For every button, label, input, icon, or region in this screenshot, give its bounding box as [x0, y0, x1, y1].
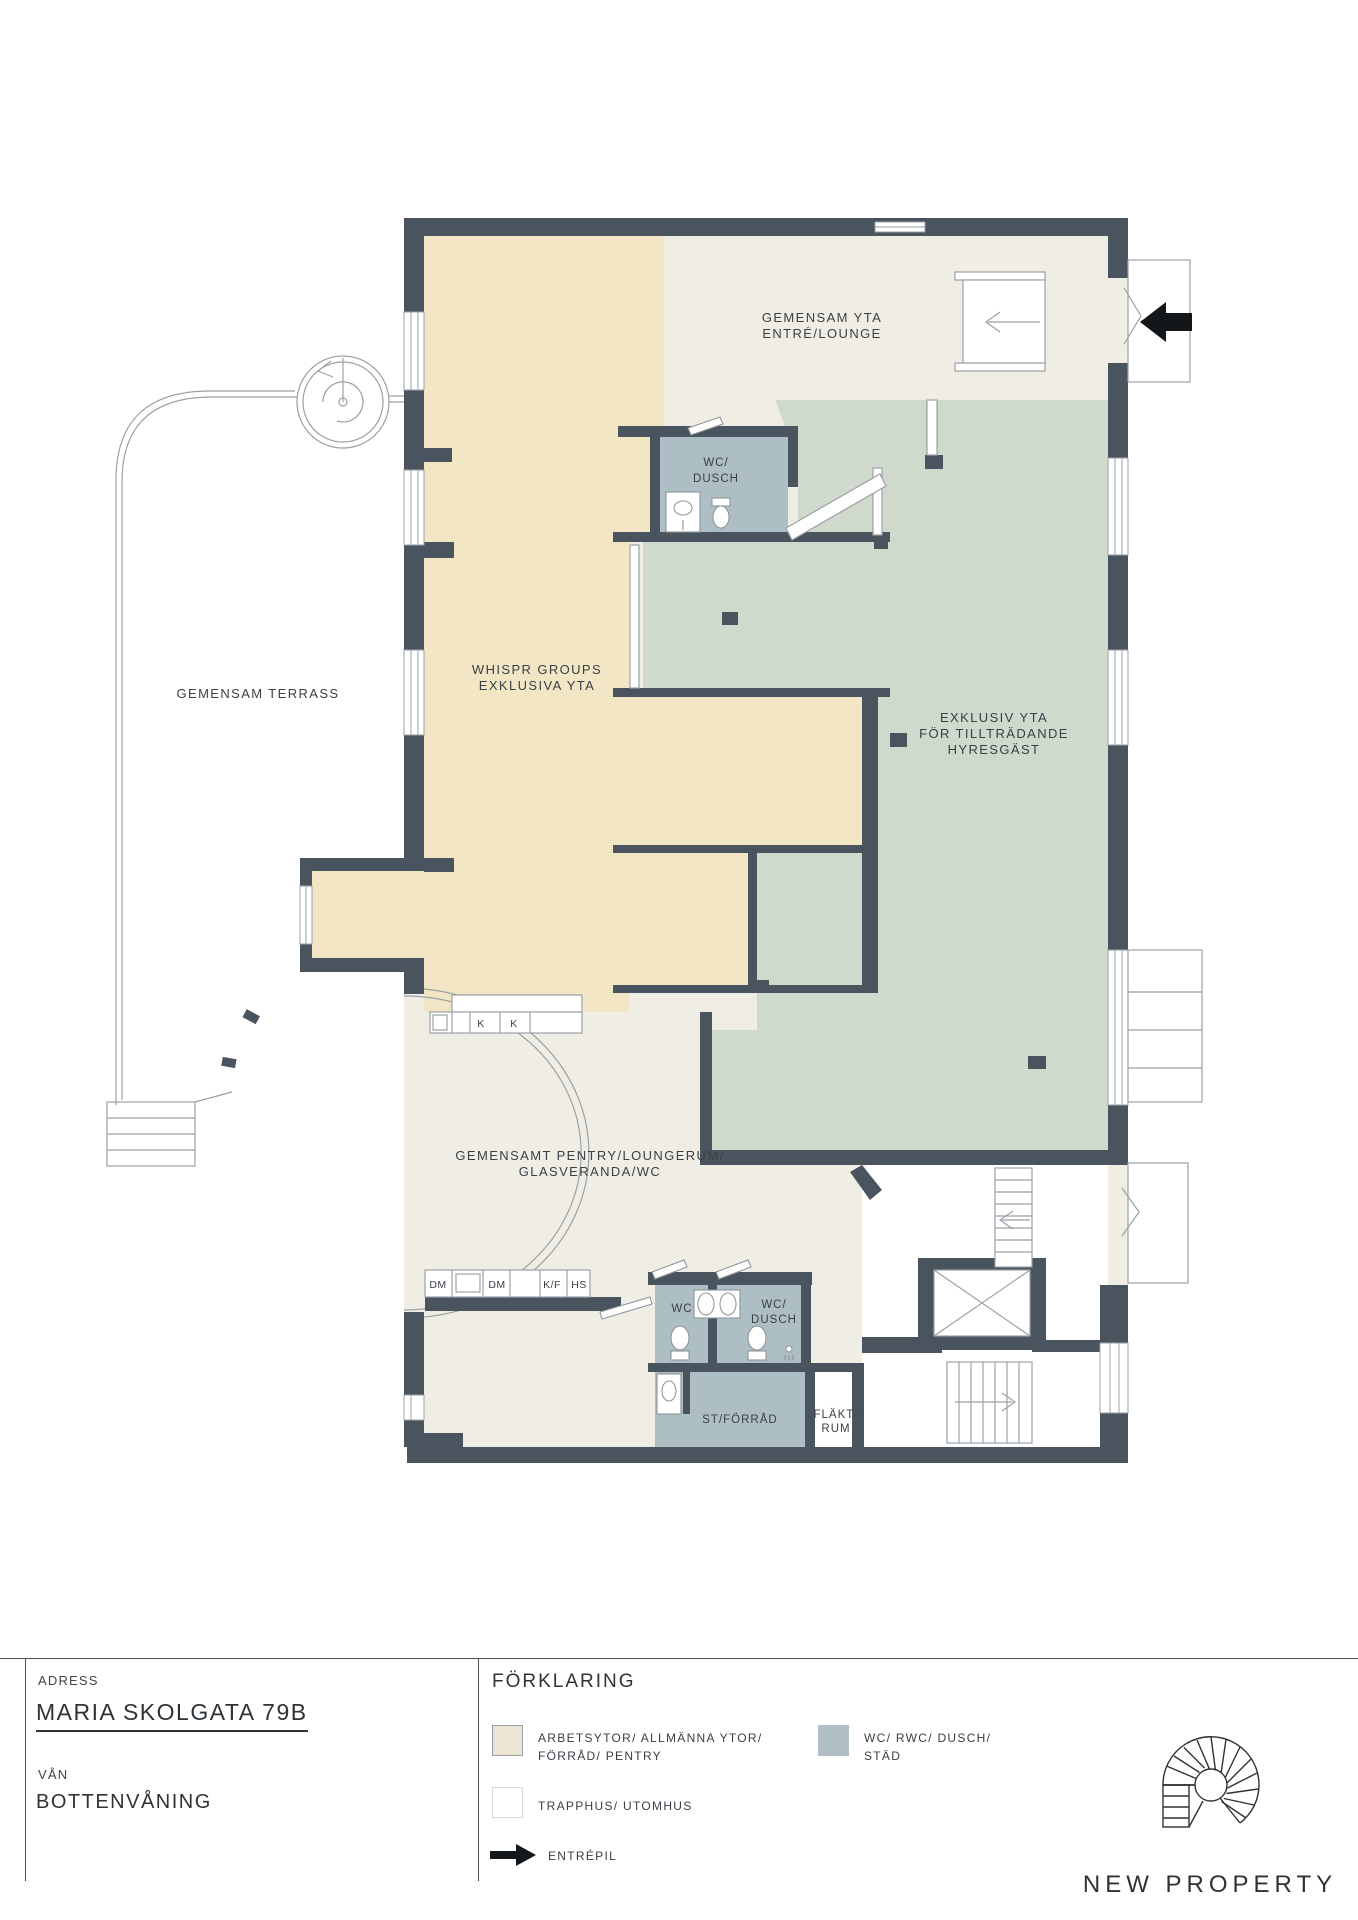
- legend-swatch-wet: [818, 1725, 849, 1756]
- label-exklusiv-2: FÖR TILLTRÄDANDE: [919, 726, 1069, 741]
- label-flaktrum-1: FLÄKT-: [814, 1409, 859, 1421]
- room-whispr-upper: [424, 236, 664, 542]
- logo-text: NEW PROPERTY: [1050, 1871, 1358, 1899]
- door-marker: [722, 612, 738, 625]
- pentry-counter-top: [430, 995, 582, 1033]
- terrace-outline: [107, 391, 404, 1166]
- door-marker: [753, 980, 769, 992]
- window-icon: [404, 650, 424, 735]
- divider: [478, 1659, 479, 1881]
- window-icon: [875, 222, 925, 232]
- label-wc-upper-2: DUSCH: [693, 473, 739, 485]
- floor-plan-drawing: GEMENSAM TERRASS GEMENSAM YTA ENTRÉ/LOUN…: [0, 0, 1358, 1660]
- window-icon: [404, 470, 424, 545]
- stair-flight-up-icon: [995, 1168, 1032, 1267]
- window-icon: [1100, 1343, 1128, 1413]
- label-pentry-1: GEMENSAMT PENTRY/LOUNGERUM/: [455, 1148, 724, 1163]
- spiral-stair-icon: [297, 356, 389, 448]
- elevator-icon: [934, 1270, 1030, 1336]
- door-marker: [890, 733, 907, 747]
- legend-item-wet: WC/ RWC/ DUSCH/ STÄD: [864, 1729, 991, 1765]
- window-icon: [300, 886, 312, 944]
- legend-item-stairwell: TRAPPHUS/ UTOMHUS: [538, 1797, 693, 1815]
- legend-swatch-stairwell: [492, 1787, 523, 1818]
- door-marker: [1028, 1056, 1046, 1069]
- legend-title: FÖRKLARING: [492, 1671, 636, 1693]
- legend-item-entrepil-label: ENTRÉPIL: [548, 1847, 617, 1865]
- divider: [25, 1659, 26, 1881]
- room-mid-office-1: [613, 695, 870, 853]
- window-icon: [1108, 950, 1128, 1105]
- legend-item-wet-line2: STÄD: [864, 1747, 991, 1765]
- label-entre-1: GEMENSAM YTA: [762, 310, 882, 325]
- sink-icon: [666, 492, 700, 532]
- lobby-stair-icon: [955, 272, 1045, 371]
- room-side-annex: [300, 858, 424, 972]
- label-exklusiv-1: EXKLUSIV YTA: [940, 710, 1048, 725]
- exit-exterior-landing: [1128, 1163, 1188, 1283]
- toilet-icon: [671, 1326, 689, 1360]
- sink-icon: [694, 1290, 740, 1318]
- toilet-icon: [748, 1326, 766, 1360]
- label-wc-lower: WC: [671, 1303, 692, 1315]
- address-label: ADRESS: [38, 1673, 99, 1688]
- label-pentry-2: GLASVERANDA/WC: [519, 1164, 661, 1179]
- toilet-icon: [712, 498, 730, 528]
- exterior-bay-icon: [1128, 950, 1202, 1102]
- label-wc-dusch-lower-2: DUSCH: [751, 1314, 797, 1326]
- legend-entry-arrow-icon: [490, 1843, 538, 1867]
- new-property-logo-icon: [1145, 1721, 1275, 1871]
- title-block: ADRESS MARIA SKOLGATA 79B VÅN BOTTENVÅNI…: [0, 1658, 1358, 1920]
- floor-label: VÅN: [38, 1767, 68, 1782]
- label-whispr-2: EXKLUSIVA YTA: [479, 678, 595, 693]
- label-whispr-1: WHISPR GROUPS: [472, 662, 602, 677]
- label-st-forrad: ST/FÖRRÅD: [702, 1413, 777, 1426]
- label-wc-dusch-lower-1: WC/: [761, 1299, 786, 1311]
- window-icon: [1108, 458, 1128, 555]
- stair-flight-down-icon: [947, 1362, 1032, 1443]
- label-flaktrum-2: RUM: [821, 1423, 850, 1435]
- label-k2: K: [510, 1018, 518, 1030]
- label-dm1: DM: [429, 1279, 446, 1291]
- label-dm2: DM: [488, 1279, 505, 1291]
- floorplan-page: GEMENSAM TERRASS GEMENSAM YTA ENTRÉ/LOUN…: [0, 0, 1358, 1920]
- legend-item-wet-line1: WC/ RWC/ DUSCH/: [864, 1729, 991, 1747]
- window-icon: [1108, 650, 1128, 745]
- label-hs: HS: [571, 1279, 587, 1291]
- pentry-counter-bottom: [425, 1270, 590, 1297]
- label-exklusiv-3: HYRESGÄST: [948, 742, 1041, 757]
- address-value: MARIA SKOLGATA 79B: [36, 1699, 308, 1732]
- room-exclusive-mid: [643, 542, 878, 695]
- label-terrass: GEMENSAM TERRASS: [176, 686, 339, 701]
- room-mid-office-2: [613, 853, 755, 993]
- window-icon: [404, 1395, 424, 1420]
- label-wc-upper-1: WC/: [703, 457, 728, 469]
- legend-item-workspace: ARBETSYTOR/ ALLMÄNNA YTOR/ FÖRRÅD/ PENTR…: [538, 1729, 763, 1765]
- legend-swatch-workspace: [492, 1725, 523, 1756]
- floor-value: BOTTENVÅNING: [36, 1791, 212, 1814]
- legend-item-workspace-line1: ARBETSYTOR/ ALLMÄNNA YTOR/: [538, 1729, 763, 1747]
- label-entre-2: ENTRÉ/LOUNGE: [762, 326, 881, 341]
- legend-item-stairwell-line1: TRAPPHUS/ UTOMHUS: [538, 1797, 693, 1815]
- label-k1: K: [477, 1018, 485, 1030]
- label-kf: K/F: [543, 1279, 561, 1291]
- window-icon: [404, 312, 424, 390]
- sink-icon: [657, 1374, 681, 1414]
- legend-item-workspace-line2: FÖRRÅD/ PENTRY: [538, 1747, 763, 1765]
- legend-item-entrepil: ENTRÉPIL: [548, 1847, 617, 1865]
- room-whispr-lower: [424, 542, 629, 1012]
- room-exclusive-small: [755, 853, 878, 993]
